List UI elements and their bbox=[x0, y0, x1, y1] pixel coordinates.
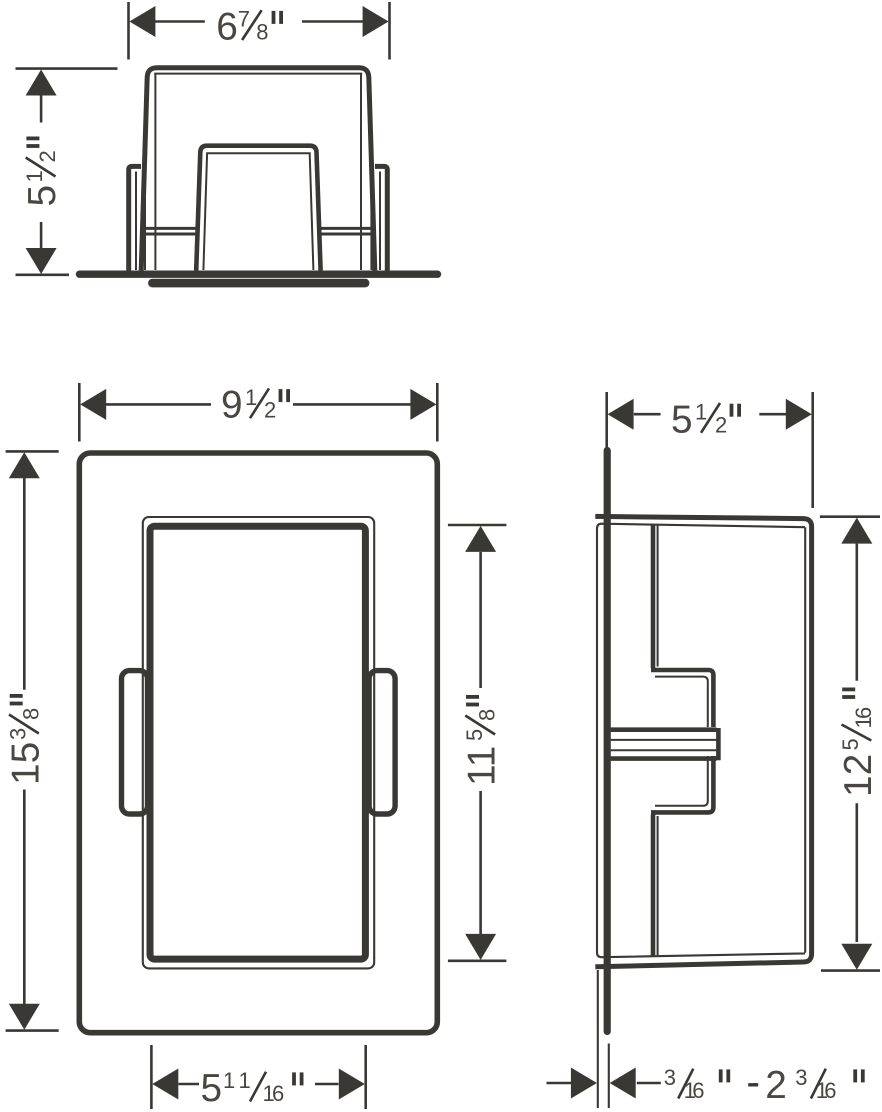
svg-text:5: 5 bbox=[462, 729, 487, 741]
svg-text:3: 3 bbox=[664, 1065, 676, 1090]
svg-text:2: 2 bbox=[264, 398, 276, 423]
svg-text:1: 1 bbox=[22, 170, 47, 182]
svg-text:9: 9 bbox=[221, 384, 243, 427]
svg-text:6: 6 bbox=[851, 707, 876, 719]
svg-text:1: 1 bbox=[223, 1068, 235, 1093]
svg-text:15: 15 bbox=[4, 742, 47, 785]
svg-text:3: 3 bbox=[6, 728, 31, 740]
svg-text:6: 6 bbox=[692, 1078, 704, 1103]
svg-text:7: 7 bbox=[238, 7, 250, 32]
svg-text:12: 12 bbox=[837, 754, 880, 797]
svg-text:1: 1 bbox=[695, 400, 707, 425]
svg-text:5: 5 bbox=[21, 185, 64, 207]
svg-text:1: 1 bbox=[245, 385, 257, 410]
svg-text:8: 8 bbox=[18, 708, 43, 720]
svg-text:6: 6 bbox=[216, 6, 238, 49]
svg-text:5: 5 bbox=[201, 1067, 223, 1110]
svg-text:1: 1 bbox=[239, 1068, 251, 1093]
svg-text:8: 8 bbox=[256, 20, 268, 45]
svg-text:2: 2 bbox=[35, 150, 60, 162]
svg-text:11: 11 bbox=[461, 746, 504, 786]
svg-text:5: 5 bbox=[671, 398, 693, 441]
svg-text:3: 3 bbox=[795, 1065, 807, 1090]
svg-text:8: 8 bbox=[475, 709, 500, 721]
svg-text:6: 6 bbox=[824, 1078, 836, 1103]
svg-text:6: 6 bbox=[272, 1081, 284, 1106]
svg-text:5: 5 bbox=[838, 738, 863, 750]
svg-text:2: 2 bbox=[765, 1064, 787, 1107]
svg-text:2: 2 bbox=[715, 412, 727, 437]
